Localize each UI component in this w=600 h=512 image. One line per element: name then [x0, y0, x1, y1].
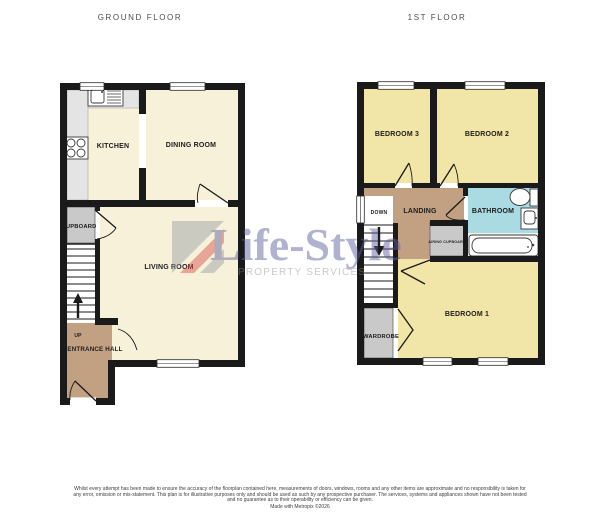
bedroom2-window [465, 82, 505, 90]
bedroom1-window-right [478, 358, 508, 366]
bedroom1-window-left [423, 358, 452, 366]
airing-cupboard-label: AIRING CUPBOARD [428, 240, 466, 244]
dining-room-label: DINING ROOM [166, 142, 216, 149]
bedroom3-label: BEDROOM 3 [375, 131, 419, 138]
living-window [157, 360, 199, 368]
wardrobe-floor [364, 308, 393, 358]
cupboard-label: CUPBOARD [61, 224, 96, 230]
dining-window [170, 83, 205, 91]
ground-floor-plan: KITCHEN DINING ROOM LIVING ROOM CUPBOARD… [50, 75, 260, 415]
kitchen-label: KITCHEN [97, 143, 130, 150]
first-floor-title: 1ST FLOOR [408, 13, 467, 22]
ground-floor-title: GROUND FLOOR [98, 13, 183, 22]
basin-icon [521, 208, 538, 229]
bathtub-icon [469, 235, 538, 256]
bedroom2-label: BEDROOM 2 [465, 131, 509, 138]
bedroom3-window [378, 82, 414, 90]
bedroom1-floor [398, 259, 538, 358]
living-room-floor [100, 207, 238, 360]
wardrobe-label: WARDROBE [363, 334, 399, 340]
metropix-credit: Made with Metropix ©2026 [70, 505, 530, 511]
down-label: DOWN [371, 210, 388, 216]
footer: Whilst every attempt has been made to en… [70, 487, 530, 510]
airing-cupboard-floor [430, 222, 464, 256]
up-label: UP [74, 333, 82, 339]
disclaimer-text: Whilst every attempt has been made to en… [70, 487, 530, 504]
first-floor-plan: BEDROOM 3 BEDROOM 2 LANDING DOWN BATHROO… [345, 75, 550, 375]
toilet-icon [510, 189, 538, 207]
kitchen-window [80, 83, 104, 91]
landing-label: LANDING [403, 208, 437, 215]
bathroom-label: BATHROOM [472, 208, 514, 215]
bedroom1-label: BEDROOM 1 [445, 311, 489, 318]
entrance-hall-label: ENTRANCE HALL [67, 346, 122, 353]
hob-icon [65, 137, 88, 159]
landing-window [357, 196, 365, 223]
floorplan-page: GROUND FLOOR 1ST FLOOR [0, 0, 600, 512]
living-room-label: LIVING ROOM [144, 264, 193, 271]
